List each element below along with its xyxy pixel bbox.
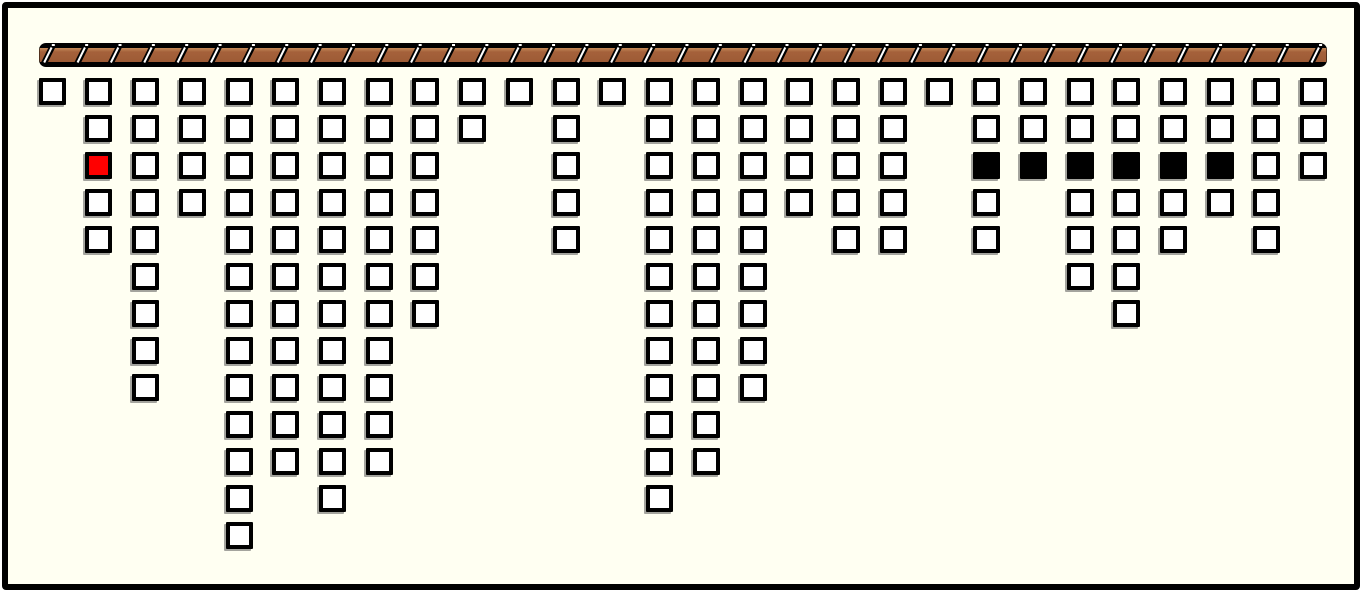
block[interactable] [272, 337, 299, 364]
block[interactable] [693, 78, 720, 105]
block[interactable] [740, 374, 767, 401]
block[interactable] [880, 78, 907, 105]
block-black[interactable] [1113, 152, 1140, 179]
block[interactable] [1113, 263, 1140, 290]
block[interactable] [319, 189, 346, 216]
block[interactable] [366, 448, 393, 475]
block[interactable] [1253, 78, 1280, 105]
block[interactable] [646, 152, 673, 179]
block[interactable] [693, 337, 720, 364]
block[interactable] [226, 485, 253, 512]
block[interactable] [599, 78, 626, 105]
block[interactable] [740, 189, 767, 216]
block[interactable] [693, 448, 720, 475]
block[interactable] [132, 374, 159, 401]
block-red[interactable] [85, 152, 112, 179]
block[interactable] [85, 78, 112, 105]
block[interactable] [226, 263, 253, 290]
block-grid [8, 8, 1354, 584]
block[interactable] [319, 337, 346, 364]
block[interactable] [366, 337, 393, 364]
block[interactable] [179, 189, 206, 216]
block[interactable] [459, 78, 486, 105]
block[interactable] [226, 78, 253, 105]
block[interactable] [740, 115, 767, 142]
block[interactable] [366, 226, 393, 253]
block[interactable] [366, 115, 393, 142]
block[interactable] [1253, 152, 1280, 179]
block[interactable] [553, 189, 580, 216]
block[interactable] [412, 189, 439, 216]
block[interactable] [646, 300, 673, 327]
block[interactable] [319, 374, 346, 401]
block[interactable] [786, 189, 813, 216]
block[interactable] [85, 226, 112, 253]
block[interactable] [132, 263, 159, 290]
block[interactable] [319, 448, 346, 475]
block[interactable] [786, 78, 813, 105]
block[interactable] [553, 78, 580, 105]
block[interactable] [132, 115, 159, 142]
block[interactable] [833, 226, 860, 253]
block[interactable] [693, 115, 720, 142]
block[interactable] [1207, 78, 1234, 105]
block[interactable] [319, 411, 346, 438]
block[interactable] [646, 189, 673, 216]
block[interactable] [319, 263, 346, 290]
block[interactable] [926, 78, 953, 105]
block[interactable] [272, 374, 299, 401]
block[interactable] [693, 189, 720, 216]
block[interactable] [693, 374, 720, 401]
block[interactable] [646, 226, 673, 253]
block[interactable] [786, 152, 813, 179]
block[interactable] [833, 152, 860, 179]
block[interactable] [880, 152, 907, 179]
block[interactable] [226, 226, 253, 253]
block[interactable] [1207, 115, 1234, 142]
block[interactable] [553, 226, 580, 253]
block[interactable] [693, 411, 720, 438]
block[interactable] [226, 152, 253, 179]
block[interactable] [319, 115, 346, 142]
block[interactable] [226, 189, 253, 216]
block[interactable] [646, 78, 673, 105]
block-black[interactable] [1160, 152, 1187, 179]
block[interactable] [366, 152, 393, 179]
block[interactable] [1160, 115, 1187, 142]
block[interactable] [740, 300, 767, 327]
block[interactable] [646, 337, 673, 364]
block[interactable] [1300, 115, 1327, 142]
block[interactable] [412, 115, 439, 142]
block[interactable] [226, 448, 253, 475]
block[interactable] [366, 374, 393, 401]
block[interactable] [693, 226, 720, 253]
block[interactable] [973, 226, 1000, 253]
block-black[interactable] [973, 152, 1000, 179]
block[interactable] [459, 115, 486, 142]
block[interactable] [973, 78, 1000, 105]
block[interactable] [740, 337, 767, 364]
block[interactable] [1067, 189, 1094, 216]
block[interactable] [646, 374, 673, 401]
block[interactable] [226, 337, 253, 364]
block[interactable] [786, 115, 813, 142]
block[interactable] [1067, 115, 1094, 142]
block[interactable] [1113, 226, 1140, 253]
block[interactable] [646, 263, 673, 290]
block[interactable] [1067, 226, 1094, 253]
block[interactable] [319, 300, 346, 327]
block[interactable] [272, 263, 299, 290]
block[interactable] [412, 300, 439, 327]
block[interactable] [1113, 300, 1140, 327]
block[interactable] [132, 226, 159, 253]
puzzle-board [2, 2, 1360, 590]
block[interactable] [272, 300, 299, 327]
block[interactable] [412, 78, 439, 105]
block[interactable] [272, 115, 299, 142]
block[interactable] [646, 448, 673, 475]
block[interactable] [1160, 226, 1187, 253]
block[interactable] [646, 485, 673, 512]
block-black[interactable] [1067, 152, 1094, 179]
block[interactable] [85, 115, 112, 142]
block[interactable] [272, 189, 299, 216]
block[interactable] [132, 152, 159, 179]
block[interactable] [1207, 189, 1234, 216]
block[interactable] [1253, 189, 1280, 216]
block[interactable] [179, 152, 206, 179]
block[interactable] [272, 78, 299, 105]
block[interactable] [85, 189, 112, 216]
block[interactable] [226, 411, 253, 438]
block[interactable] [226, 374, 253, 401]
block[interactable] [1113, 78, 1140, 105]
block[interactable] [272, 448, 299, 475]
block[interactable] [1020, 78, 1047, 105]
block[interactable] [1300, 152, 1327, 179]
block[interactable] [646, 115, 673, 142]
block-black[interactable] [1207, 152, 1234, 179]
block[interactable] [1067, 78, 1094, 105]
block[interactable] [1113, 115, 1140, 142]
block[interactable] [740, 152, 767, 179]
block[interactable] [1253, 115, 1280, 142]
block[interactable] [833, 189, 860, 216]
block[interactable] [179, 78, 206, 105]
block[interactable] [412, 263, 439, 290]
block[interactable] [179, 115, 206, 142]
block-black[interactable] [1020, 152, 1047, 179]
block[interactable] [412, 152, 439, 179]
block[interactable] [272, 411, 299, 438]
block[interactable] [693, 152, 720, 179]
block[interactable] [366, 411, 393, 438]
block[interactable] [973, 189, 1000, 216]
block[interactable] [132, 189, 159, 216]
block[interactable] [833, 115, 860, 142]
block[interactable] [1160, 78, 1187, 105]
block[interactable] [132, 300, 159, 327]
block[interactable] [833, 78, 860, 105]
block[interactable] [319, 78, 346, 105]
block[interactable] [366, 78, 393, 105]
block[interactable] [272, 152, 299, 179]
block[interactable] [1113, 189, 1140, 216]
block[interactable] [880, 189, 907, 216]
block[interactable] [880, 115, 907, 142]
block[interactable] [226, 115, 253, 142]
block[interactable] [319, 485, 346, 512]
block[interactable] [693, 300, 720, 327]
block[interactable] [226, 300, 253, 327]
block[interactable] [740, 226, 767, 253]
block[interactable] [973, 115, 1000, 142]
block[interactable] [319, 152, 346, 179]
block[interactable] [1300, 78, 1327, 105]
block[interactable] [740, 263, 767, 290]
block[interactable] [1253, 226, 1280, 253]
block[interactable] [412, 226, 439, 253]
block[interactable] [553, 152, 580, 179]
block[interactable] [553, 115, 580, 142]
block[interactable] [366, 263, 393, 290]
block[interactable] [646, 411, 673, 438]
block[interactable] [366, 189, 393, 216]
block[interactable] [740, 78, 767, 105]
block[interactable] [39, 78, 66, 105]
block[interactable] [880, 226, 907, 253]
block[interactable] [1067, 263, 1094, 290]
block[interactable] [319, 226, 346, 253]
block[interactable] [506, 78, 533, 105]
block[interactable] [366, 300, 393, 327]
block[interactable] [226, 522, 253, 549]
block[interactable] [1020, 115, 1047, 142]
block[interactable] [1160, 189, 1187, 216]
block[interactable] [272, 226, 299, 253]
block[interactable] [132, 78, 159, 105]
block[interactable] [693, 263, 720, 290]
block[interactable] [132, 337, 159, 364]
